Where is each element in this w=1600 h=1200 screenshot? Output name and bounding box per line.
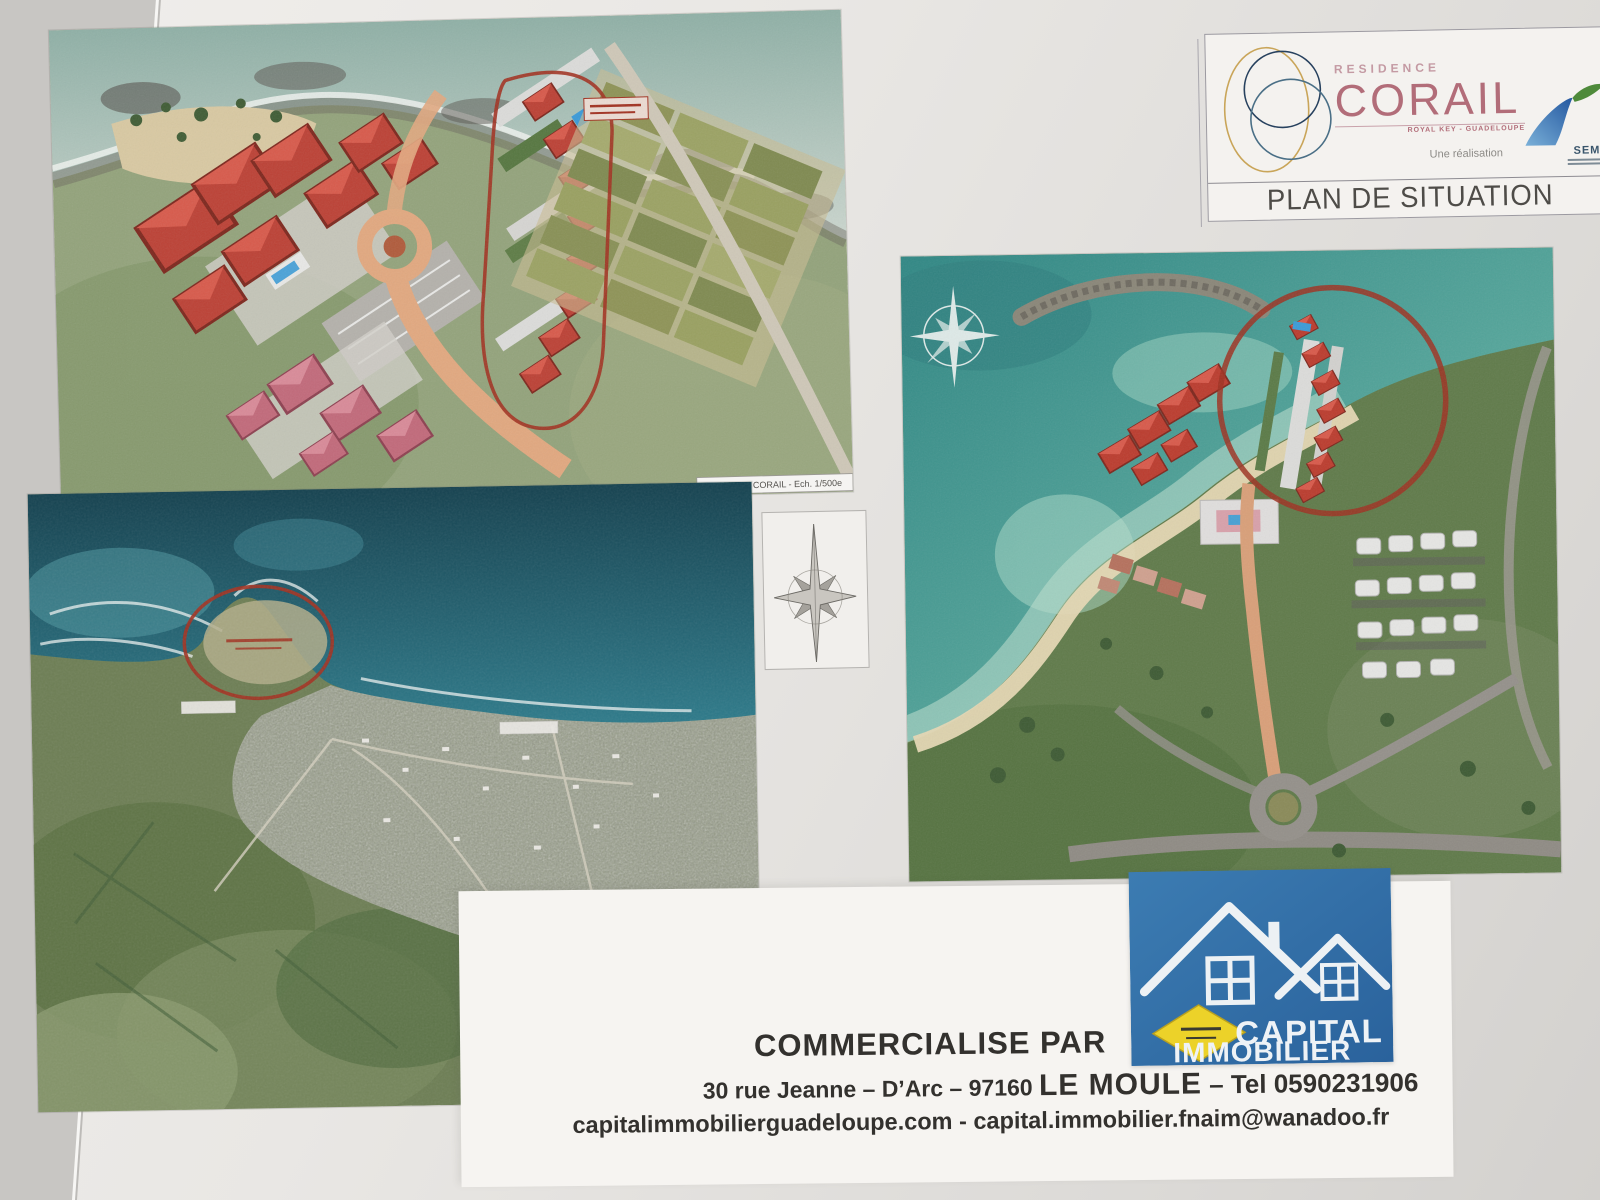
compass-rose-box [761, 510, 869, 670]
peninsula-render-image [901, 247, 1562, 881]
address-city: LE MOULE [1039, 1067, 1202, 1102]
bird-wing [1525, 98, 1574, 146]
partner-tagline-lines [1568, 158, 1600, 167]
resort-render-image: Residence CORAIL - Ech. 1/500e [49, 10, 853, 513]
title-box: RESIDENCE CORAIL ROYAL KEY - GUADELOUPE … [1204, 26, 1600, 222]
partner-name: SEM [1573, 144, 1600, 157]
immobilier-text: IMMOBILIER [1173, 1035, 1351, 1066]
peninsula-render-map [901, 247, 1562, 881]
logo-row: RESIDENCE CORAIL ROYAL KEY - GUADELOUPE … [1205, 27, 1600, 184]
bird-leaf [1572, 84, 1600, 102]
address-tel: – Tel 0590231906 [1202, 1067, 1419, 1099]
chimney [1268, 922, 1279, 950]
commercialise-label: COMMERCIALISE PAR [700, 1024, 1160, 1065]
plan-title: PLAN DE SITUATION [1267, 179, 1554, 217]
compass-rose-icon [762, 511, 868, 669]
brand-lockup: RESIDENCE CORAIL ROYAL KEY - GUADELOUPE [1334, 59, 1525, 136]
photographed-plan-sheet: Residence CORAIL - Ech. 1/500e [0, 0, 1600, 1200]
contact-line: capitalimmobilierguadeloupe.com - capita… [531, 1103, 1431, 1139]
corail-circles-logo [1219, 40, 1340, 183]
plan-title-row: PLAN DE SITUATION [1208, 175, 1600, 221]
capital-immobilier-logo: CAPITAL IMMOBILIER [1128, 868, 1393, 1066]
address-prefix: 30 rue Jeanne – D’Arc – 97160 [703, 1074, 1040, 1104]
realisation-label: Une réalisation [1429, 147, 1503, 160]
sem-logo: SEM [1516, 82, 1600, 167]
resort-render-map: Residence CORAIL - Ech. 1/500e [49, 10, 853, 513]
brand-corail-label: CORAIL [1334, 75, 1525, 124]
box-edge-line [1197, 39, 1202, 227]
address-line: 30 rue Jeanne – D’Arc – 97160 LE MOULE –… [610, 1064, 1510, 1107]
